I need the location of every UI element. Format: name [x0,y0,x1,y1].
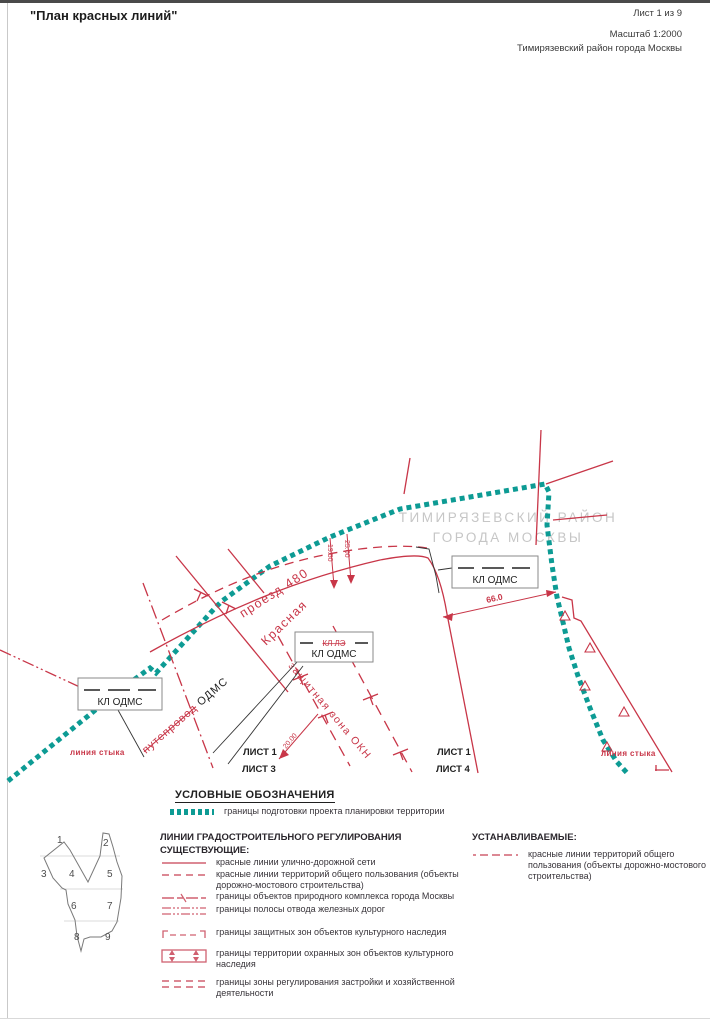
sheet-index-number-5: 5 [107,869,113,880]
callout-box-left: КЛ ОДМС [78,678,162,710]
dim-label-a: 19.50 [326,544,333,562]
legend-section-title: ЛИНИИ ГРАДОСТРОИТЕЛЬНОГО РЕГУЛИРОВАНИЯ [160,832,460,844]
sheet-number: Лист 1 из 9 [633,8,682,19]
scan-edge-top [0,0,710,3]
sheet-ref-right-top: ЛИСТ 1 [437,747,472,758]
legend-item-railway: границы полосы отвода железных дорог [160,904,385,918]
region-caption: ТИМИРЯЗЕВСКИЙ РАЙОН ГОРОДА МОСКВЫ [399,510,617,545]
dim-arrow-b [347,575,355,584]
sheet-index-number-8: 8 [74,932,80,943]
callout-left-label: КЛ ОДМС [97,697,142,708]
road-edge-solid [150,556,478,773]
sheet-index-number-7: 7 [107,901,113,912]
callout-right-label: КЛ ОДМС [472,575,517,586]
dim-label-66: 66.0 [485,591,504,605]
dashed-red-line-swatch [160,869,208,881]
sheet-ref-left-bottom: ЛИСТ 3 [242,764,276,775]
seam-label-right: линия стыка [601,749,656,758]
top-horizontal-line1 [546,461,613,484]
legend-item-uds: красные линии улично-дорожной сети [160,857,376,869]
legend-item-railway-label: границы полосы отвода железных дорог [216,904,385,915]
solid-red-line-swatch [160,857,208,869]
legend-item-boundary: границы подготовки проекта планировки те… [168,806,445,818]
top-vertical-line2 [536,430,541,545]
sheet-index-number-2: 2 [103,838,109,849]
callout-middle-struck: КЛ ЛЭ [322,639,345,648]
callout-middle-label: КЛ ОДМС [311,649,356,660]
legend-title: УСЛОВНЫЕ ОБОЗНАЧЕНИЯ [175,789,335,803]
legend-item-protection-zones-label: границы защитных зон объектов культурног… [216,927,446,938]
legend-item-guard-zones-label: границы территории охранных зон объектов… [216,948,468,970]
legend-existing-title: СУЩЕСТВУЮЩИЕ: [160,845,249,857]
double-dash-swatch [160,977,208,991]
legend-item-nature-complex: границы объектов природного комплекса го… [160,891,454,903]
map-scale: Масштаб 1:2000 [610,29,682,40]
dim-label-b: 25.00 [343,540,350,558]
bracket-dash-swatch [160,927,208,941]
legend-item-public-red-lines: красные линии территорий общего пользова… [160,869,468,891]
sheet-index-number-1: 1 [57,835,63,846]
rect-triangle-swatch [160,948,208,964]
sheet-ref-right-bottom: ЛИСТ 4 [436,764,471,775]
legend-item-regulation-zone: границы зоны регулирования застройки и х… [160,977,468,999]
district-name: Тимирязевский район города Москвы [517,43,682,54]
zone-label: защитная зона ОКН [286,660,374,762]
legend-item-protection-zones: границы защитных зон объектов культурног… [160,927,446,941]
dashdot-tick-swatch [160,891,208,903]
top-vertical-line1 [404,458,410,494]
region-caption-line2: ГОРОДА МОСКВЫ [433,530,584,545]
railway-swatch [160,904,208,918]
sheet-index-number-6: 6 [71,901,77,912]
legend-item-uds-label: красные линии улично-дорожной сети [216,857,376,868]
sheet-index-diagram: 1 2 3 4 5 6 7 8 9 [30,820,155,960]
legend-item-boundary-label: границы подготовки проекта планировки те… [224,806,445,817]
guard-zone-boundary [562,597,672,772]
established-dash-swatch [472,849,520,861]
scan-edge-bottom [0,1018,710,1019]
cross-street-line1 [176,556,288,692]
legend-item-established-red-lines: красные линии территорий общего пользова… [472,849,710,882]
dim-arrow-20 [279,749,289,759]
dim-arrow-a [330,580,338,589]
legend-established-title: УСТАНАВЛИВАЕМЫЕ: [472,832,577,844]
guard-zone-bottom-tick [655,765,669,771]
seam-label-left: линия стыка [70,748,125,757]
page-title: "План красных линий" [30,8,177,23]
sheet-index-number-9: 9 [105,932,111,943]
callout-box-middle: КЛ ЛЭ КЛ ОДМС [295,632,373,662]
callout-box-right: КЛ ОДМС [452,556,538,588]
sheet-index-number-3: 3 [41,869,47,880]
legend-item-guard-zones: границы территории охранных зон объектов… [160,948,468,970]
red-lines-map: ТИМИРЯЗЕВСКИЙ РАЙОН ГОРОДА МОСКВЫ [0,430,710,792]
sheet-index-number-4: 4 [69,869,75,880]
dim-label-20: 20.00 [282,732,299,750]
guard-zone-triangles [560,611,629,751]
legend-item-regulation-zone-label: границы зоны регулирования застройки и х… [216,977,468,999]
boundary-swatch [168,806,216,818]
legend-item-public-red-lines-label: красные линии территорий общего пользова… [216,869,468,891]
legend-item-nature-complex-label: границы объектов природного комплекса го… [216,891,454,902]
legend-item-established-red-lines-label: красные линии территорий общего пользова… [528,849,710,882]
overpass-label-new: ОДМС [195,675,231,708]
plan-sheet-page: "План красных линий" Лист 1 из 9 Масштаб… [0,0,710,1022]
sheet-ref-left-top: ЛИСТ 1 [243,747,278,758]
